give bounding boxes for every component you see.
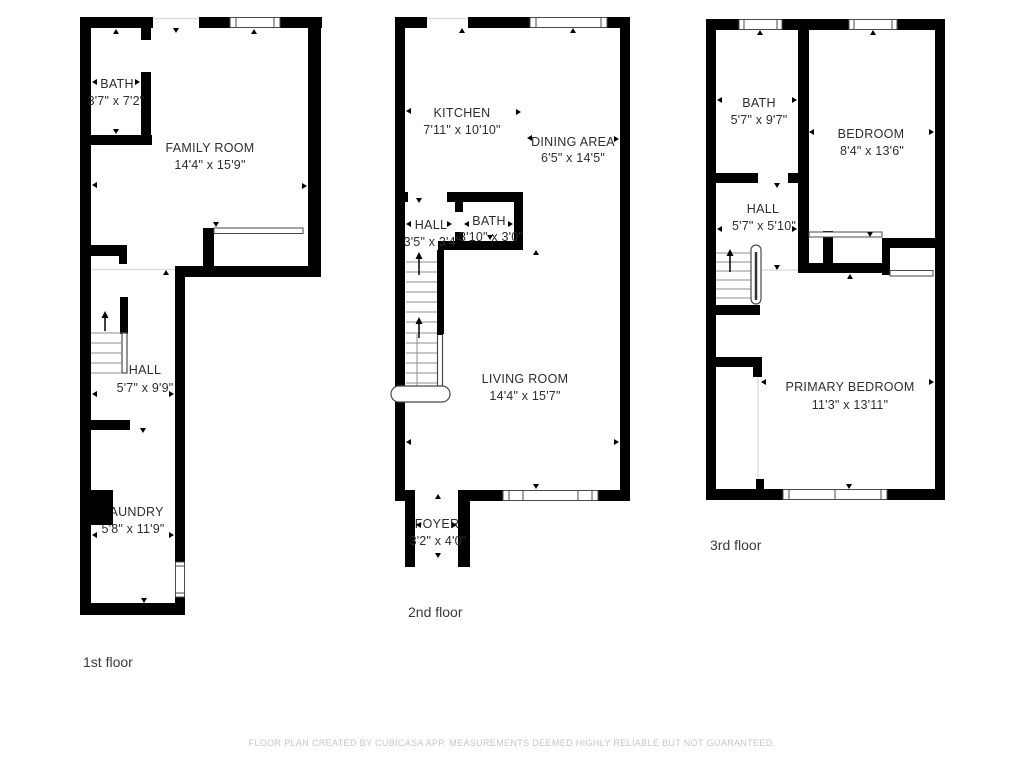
window — [530, 18, 607, 28]
interior-opening — [890, 271, 933, 277]
room-name-bath-1f: BATH — [100, 77, 134, 91]
room-name-living: LIVING ROOM — [482, 372, 569, 386]
floor-plan-1st: BATH 3'7" x 7'2" FAMILY ROOM 14'4" x 15'… — [80, 17, 322, 670]
room-dims-bath-3f: 5'7" x 9'7" — [731, 113, 788, 127]
footer-disclaimer: FLOOR PLAN CREATED BY CUBICASA APP. MEAS… — [249, 738, 776, 748]
room-dims-bath-1f: 3'7" x 7'2" — [88, 94, 145, 108]
room-dims-dining: 6'5" x 14'5" — [541, 151, 605, 165]
window — [503, 491, 598, 501]
room-dims-hall-1f: 5'7" x 9'9" — [117, 381, 174, 395]
window — [176, 562, 185, 597]
room-name-kitchen: KITCHEN — [434, 106, 491, 120]
room-name-hall-1f: HALL — [129, 363, 161, 377]
room-name-family: FAMILY ROOM — [166, 141, 255, 155]
room-name-bath-3f: BATH — [742, 96, 776, 110]
room-name-dining: DINING AREA — [531, 135, 615, 149]
floor-plan-page: BATH 3'7" x 7'2" FAMILY ROOM 14'4" x 15'… — [0, 0, 1024, 768]
floor-plan-3rd: BATH 5'7" x 9'7" BEDROOM 8'4" x 13'6" HA… — [706, 19, 945, 553]
floor-plan-drawing: BATH 3'7" x 7'2" FAMILY ROOM 14'4" x 15'… — [0, 0, 1024, 768]
room-dims-hall-3f: 5'7" x 5'10" — [732, 219, 796, 233]
stairs-icon — [716, 245, 761, 304]
room-label-group: BATH 3'7" x 7'2" FAMILY ROOM 14'4" x 15'… — [88, 77, 255, 536]
room-name-bedroom: BEDROOM — [838, 127, 905, 141]
room-dims-bedroom: 8'4" x 13'6" — [840, 144, 904, 158]
floor-label-3rd: 3rd floor — [710, 537, 762, 553]
room-dims-hall-2f: 3'5" x 3'4" — [404, 235, 461, 249]
floor-label-1st: 1st floor — [83, 654, 133, 670]
room-dims-primary: 11'3" x 13'11" — [812, 398, 888, 412]
room-dims-family: 14'4" x 15'9" — [174, 158, 245, 172]
room-label-group: KITCHEN 7'11" x 10'10" DINING AREA 6'5" … — [404, 106, 616, 548]
window — [230, 18, 280, 28]
room-name-primary: PRIMARY BEDROOM — [785, 380, 914, 394]
window — [739, 20, 782, 30]
room-name-bath-2f: BATH — [472, 214, 506, 228]
floor-plan-2nd: KITCHEN 7'11" x 10'10" DINING AREA 6'5" … — [391, 17, 630, 620]
room-dims-foyer: 3'2" x 4'0" — [410, 534, 467, 548]
window — [849, 20, 897, 30]
room-name-hall-2f: HALL — [415, 218, 447, 232]
room-dims-living: 14'4" x 15'7" — [489, 389, 560, 403]
utility-block — [87, 490, 113, 525]
faint-boundaries-3rd — [758, 270, 798, 479]
walls-3rd — [706, 19, 945, 500]
room-name-hall-3f: HALL — [747, 202, 779, 216]
closet-door — [214, 228, 303, 234]
window — [783, 490, 887, 500]
room-dims-kitchen: 7'11" x 10'10" — [423, 123, 500, 137]
floor-label-2nd: 2nd floor — [408, 604, 463, 620]
